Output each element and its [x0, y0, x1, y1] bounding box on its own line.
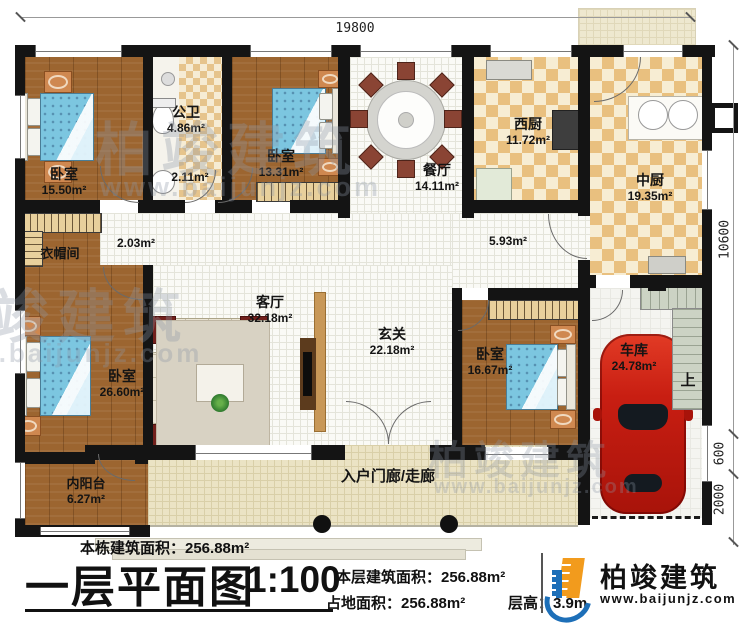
stairs-lower-flight	[672, 308, 706, 410]
nightstand-icon	[550, 410, 576, 429]
window	[485, 447, 549, 460]
room-label-inner-balcony: 内阳台 6.27m²	[45, 476, 127, 506]
tv-icon	[303, 352, 312, 396]
bed-icon	[15, 336, 89, 414]
logo-swoosh	[536, 569, 600, 625]
wall-segment	[452, 288, 460, 300]
window	[702, 425, 712, 482]
title-underline	[25, 609, 333, 612]
room-label-dining: 餐厅 14.11m²	[398, 162, 476, 193]
kitchen-sink-icon	[668, 100, 698, 130]
wardrobe-icon	[256, 182, 340, 202]
nightstand-icon	[44, 71, 72, 93]
window	[35, 45, 122, 57]
company-logo-icon	[544, 556, 596, 614]
window	[250, 45, 332, 57]
chair-icon	[444, 110, 462, 128]
dimension-line-right	[733, 45, 734, 545]
hall-west-label: 2.03m²	[104, 236, 168, 250]
wardrobe-icon	[488, 300, 580, 320]
wall-segment	[15, 452, 95, 464]
dimension-right-bottom: 2000	[713, 474, 728, 526]
window	[195, 445, 312, 460]
window	[15, 462, 25, 519]
stove-icon	[648, 256, 686, 274]
dimension-line-top	[20, 17, 690, 18]
chair-icon	[350, 110, 368, 128]
shower-head-icon	[161, 72, 175, 86]
nightstand-icon	[550, 325, 576, 344]
wall-segment	[578, 288, 590, 525]
wall-segment	[143, 265, 153, 452]
room-label-foyer: 玄关 22.18m²	[352, 326, 432, 357]
company-name: 柏竣建筑	[600, 556, 720, 595]
car-mirror	[593, 408, 602, 421]
wall-segment	[15, 200, 100, 213]
window	[702, 150, 712, 210]
room-label-bathroom: 公卫 4.86m²	[150, 104, 222, 135]
chair-icon	[397, 62, 415, 80]
porch-label: 入户门廊/走廊	[328, 468, 448, 486]
porch-column	[313, 515, 331, 533]
room-label-bedroom-topleft: 卧室 15.50m²	[20, 166, 108, 197]
kitchen-sink-icon	[638, 100, 668, 130]
window	[40, 527, 130, 535]
window	[15, 95, 25, 159]
plant-icon	[211, 394, 229, 412]
hall-east-label: 5.93m²	[472, 234, 544, 248]
dimension-right-main: 10600	[718, 200, 733, 280]
wall-segment	[290, 200, 345, 213]
garage-door-dashed	[592, 516, 700, 519]
car-windshield	[618, 404, 668, 430]
porch-column	[440, 515, 458, 533]
room-label-bath-sink: 2.11m²	[158, 170, 222, 184]
floor-plan-page: 卧室 15.50m² 公卫 4.86m² 2.11m² 卧室 13.31m² 餐…	[0, 0, 750, 625]
wall-segment	[547, 445, 590, 460]
stairs-up-label: 上	[678, 372, 698, 390]
wall-segment	[462, 200, 590, 213]
room-label-west-kitchen: 西厨 11.72m²	[492, 116, 564, 147]
dimension-right-mid: 600	[713, 435, 728, 473]
window	[490, 45, 572, 57]
room-label-bedroom-bottomleft: 卧室 26.60m²	[82, 368, 162, 399]
footer-divider	[541, 553, 543, 613]
wall-segment	[590, 275, 596, 288]
wall-segment	[430, 445, 485, 460]
bed-icon	[272, 88, 340, 152]
wall-segment	[310, 445, 345, 460]
room-label-bedroom-bottomright: 卧室 16.67m²	[452, 346, 528, 377]
wall-segment	[578, 260, 590, 288]
dining-table-center	[398, 112, 414, 128]
window	[623, 45, 683, 57]
plan-title: 一层平面图	[25, 551, 255, 615]
cloakroom-shelving	[15, 213, 102, 233]
wall-segment	[578, 45, 590, 205]
fridge-icon	[476, 168, 512, 204]
room-label-living: 客厅 32.18m²	[232, 294, 308, 325]
wall-segment	[630, 275, 702, 288]
car-rear-window	[624, 474, 662, 492]
wall-segment	[338, 45, 350, 218]
room-label-garage: 车库 24.78m²	[598, 342, 670, 373]
room-label-bedroom-topmid: 卧室 13.31m²	[238, 148, 324, 179]
bed-icon	[16, 93, 92, 159]
window	[360, 45, 452, 57]
land-area: 占地面积：256.88m²	[326, 592, 465, 613]
room-label-cloakroom: 衣帽间	[28, 246, 92, 262]
wall-segment	[138, 200, 185, 213]
dimension-top-value: 19800	[305, 21, 405, 36]
room-label-main-kitchen: 中厨 19.35m²	[610, 172, 690, 203]
window	[15, 310, 25, 374]
floor-area: 本层建筑面积：256.88m²	[336, 566, 505, 587]
company-website: www.baijunjz.com	[600, 591, 736, 606]
west-kitchen-sink-icon	[486, 60, 532, 80]
wall-segment	[488, 288, 590, 300]
